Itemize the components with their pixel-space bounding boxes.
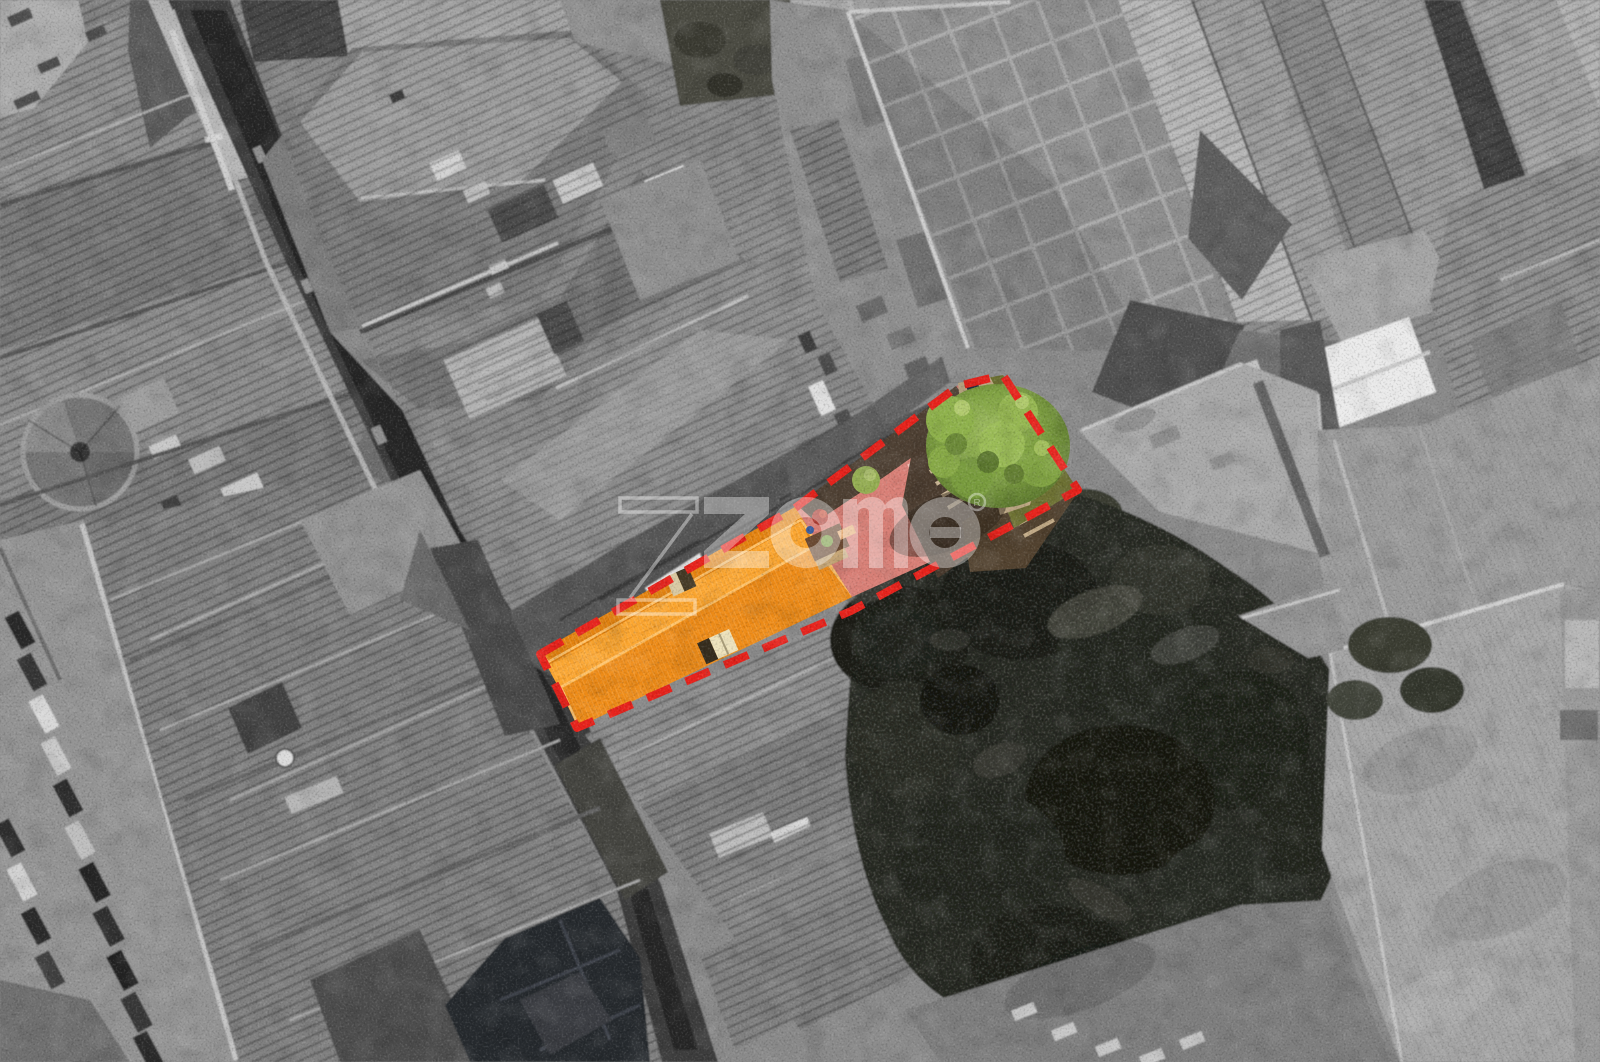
svg-text:R: R bbox=[973, 498, 980, 509]
